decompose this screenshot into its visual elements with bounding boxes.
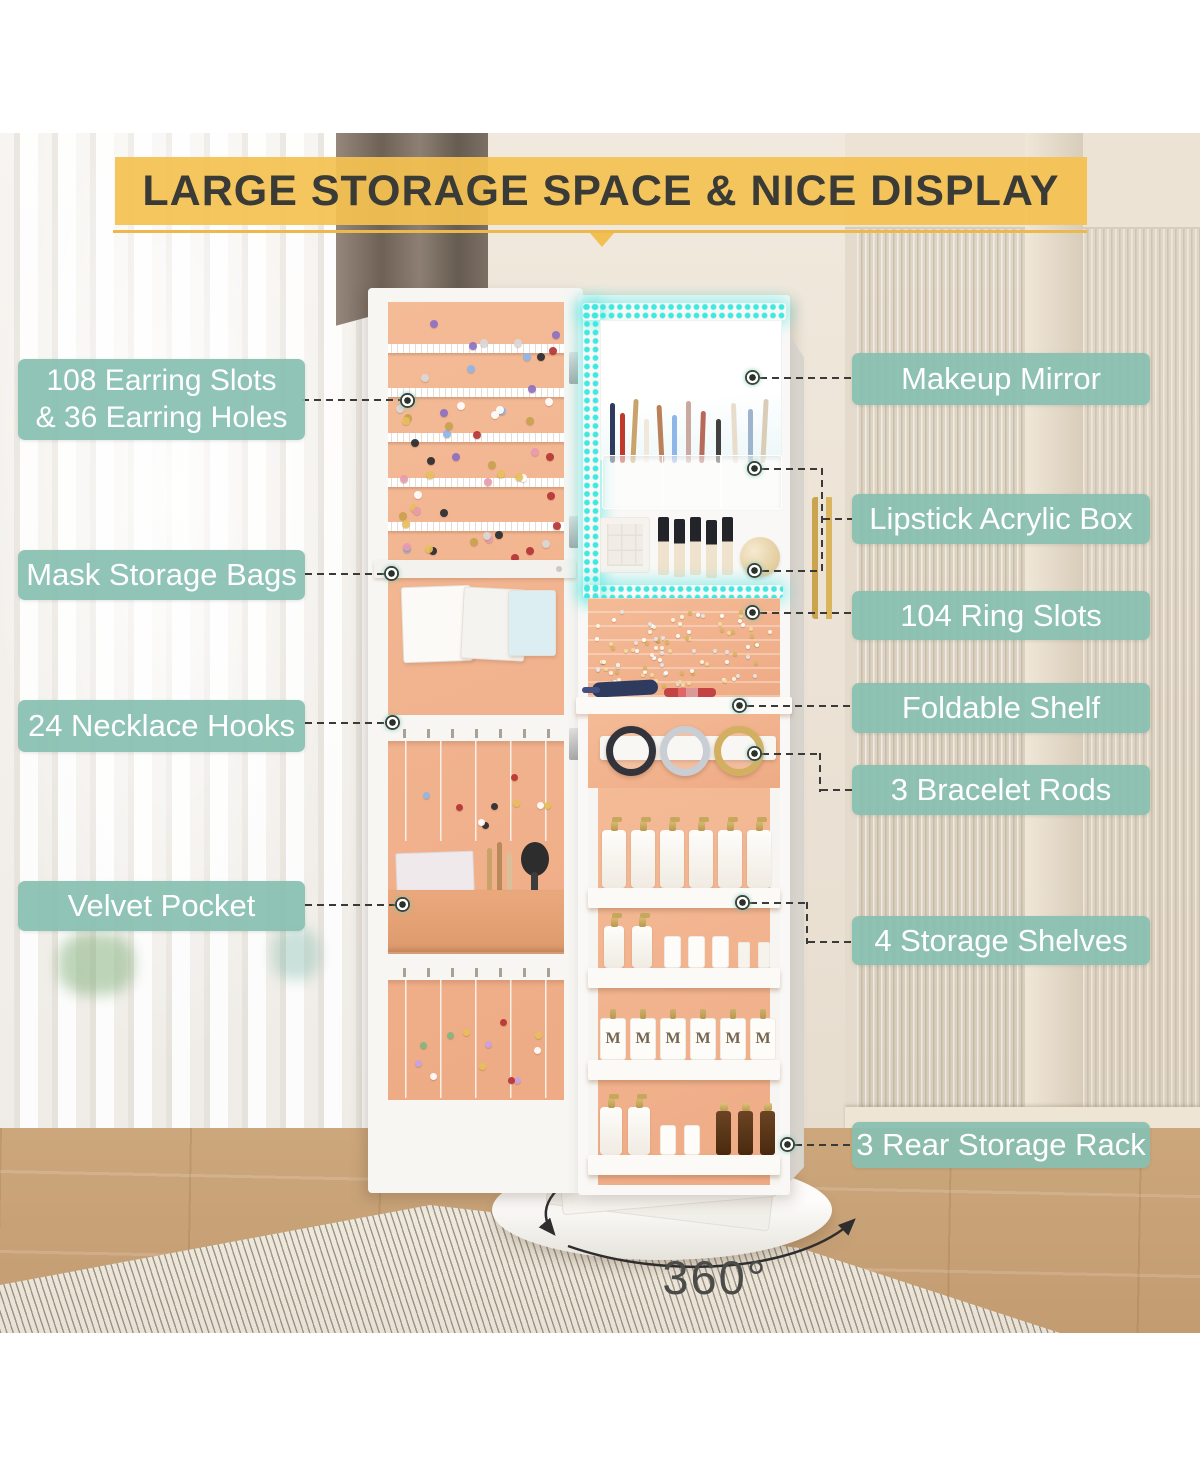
connector-dot: [385, 715, 400, 730]
connector-dot: [745, 370, 760, 385]
connector-line: [762, 468, 822, 470]
callout-makeup-mirror: Makeup Mirror: [852, 353, 1150, 405]
note-cards: [395, 851, 474, 896]
pump-bottle: [718, 830, 742, 888]
bracelet-rod: [606, 726, 656, 776]
headline-banner: LARGE STORAGE SPACE & NICE DISPLAY: [115, 157, 1087, 225]
perfume-bottle: M: [600, 1018, 626, 1060]
callout-velvet-pocket: Velvet Pocket: [18, 881, 305, 931]
bottle-letter: M: [725, 1030, 740, 1048]
door-interior: [388, 302, 564, 1100]
connector-line: [760, 612, 852, 614]
storage-shelf: [588, 888, 780, 908]
pump-bottle: [632, 926, 652, 968]
wardrobe-handle: [812, 497, 834, 619]
pocket-brushes: [483, 842, 553, 894]
pump-bottle: [689, 830, 713, 888]
callout-necklace-hooks: 24 Necklace Hooks: [18, 700, 305, 752]
led-strip-left: [583, 303, 600, 598]
sheer-curtain: [0, 133, 372, 1168]
connector-line: [305, 573, 384, 575]
connector-dot: [780, 1137, 795, 1152]
connector-dot: [395, 897, 410, 912]
pump-bottle: [660, 830, 684, 888]
earring-panel: [388, 302, 564, 582]
window-glimpse: [272, 928, 320, 980]
storage-shelf: [588, 968, 780, 988]
bottle-letter: M: [695, 1030, 710, 1048]
connector-dot: [747, 563, 762, 578]
lipstick: [674, 519, 685, 577]
spray-bottle: [716, 1111, 731, 1155]
callout-mask-storage-bags: Mask Storage Bags: [18, 550, 305, 600]
small-cosmetics: [664, 688, 716, 697]
connector-line: [795, 1144, 852, 1146]
connector-line: [305, 722, 385, 724]
connector-line: [808, 941, 852, 943]
window-glimpse: [58, 933, 134, 995]
necklace-area-1: [388, 741, 564, 841]
lipstick: [722, 517, 733, 575]
connector-dot: [745, 605, 760, 620]
mini-bottle: [758, 942, 770, 968]
cosmetic-tube: [688, 936, 705, 968]
connector-line: [819, 753, 821, 792]
callout-storage-shelves: 4 Storage Shelves: [852, 916, 1150, 965]
hairbrush-handle: [582, 687, 600, 693]
connector-line: [806, 902, 808, 944]
door-divider-bar: [374, 560, 576, 578]
callout-earring-slots: 108 Earring Slots & 36 Earring Holes: [18, 359, 305, 440]
product-infographic: 360°: [0, 0, 1200, 1466]
bottle-letter: M: [605, 1030, 620, 1048]
necklace-hooks-bar: [388, 715, 564, 741]
mini-bottle: [738, 942, 750, 968]
letterbox-top: [0, 0, 1200, 133]
shelf-zone: M M M M M M: [588, 788, 780, 1185]
callout-bracelet-rods: 3 Bracelet Rods: [852, 765, 1150, 815]
necklace-hooks-bar: [388, 954, 564, 980]
spray-bottle: [760, 1111, 775, 1155]
bottle-letter: M: [665, 1030, 680, 1048]
spray-bottle: [738, 1111, 753, 1155]
connector-line: [762, 570, 822, 572]
connector-line: [750, 902, 807, 904]
makeup-palette: [600, 517, 650, 573]
callout-lipstick-acrylic-box: Lipstick Acrylic Box: [852, 494, 1150, 544]
cosmetic-tube: [664, 936, 681, 968]
perfume-bottle: M: [660, 1018, 686, 1060]
connector-dot: [747, 746, 762, 761]
brush-cup: [604, 397, 780, 463]
velvet-pocket: [388, 890, 564, 952]
connector-dot: [732, 698, 747, 713]
storage-shelf: [588, 1060, 780, 1080]
bracelet-rod: [660, 726, 710, 776]
letterbox-bottom: [0, 1333, 1200, 1466]
connector-line: [760, 377, 852, 379]
perfume-bottle: M: [720, 1018, 746, 1060]
banner-pointer: [590, 233, 614, 247]
connector-line: [823, 518, 852, 520]
headline-text: LARGE STORAGE SPACE & NICE DISPLAY: [142, 167, 1059, 216]
callout-ring-slots: 104 Ring Slots: [852, 591, 1150, 640]
connector-line: [747, 705, 852, 707]
storage-shelf: [588, 1155, 780, 1175]
connector-line: [821, 789, 852, 791]
lipstick: [658, 517, 669, 575]
bottle-letter: M: [755, 1030, 770, 1048]
cosmetic-tube: [712, 936, 729, 968]
pump-bottle: [628, 1107, 650, 1155]
perfume-bottle: M: [750, 1018, 776, 1060]
lipstick: [690, 517, 701, 575]
left-door: [368, 288, 583, 1193]
connector-dot: [400, 393, 415, 408]
cabinet-body: M M M M M M: [578, 295, 790, 1195]
connector-line: [762, 753, 820, 755]
cosmetic-tube: [660, 1125, 676, 1155]
cabinet-side-panel: [788, 332, 804, 1184]
cosmetic-tube: [684, 1125, 700, 1155]
connector-dot: [747, 461, 762, 476]
callout-foldable-shelf: Foldable Shelf: [852, 683, 1150, 733]
pump-bottle: [631, 830, 655, 888]
connector-line: [302, 399, 400, 401]
led-strip-middle: [583, 585, 783, 598]
round-brush: [521, 842, 549, 876]
connector-dot: [384, 566, 399, 581]
callout-rear-storage-rack: 3 Rear Storage Rack: [852, 1122, 1150, 1168]
lipstick: [706, 520, 717, 578]
rotation-degrees-label: 360°: [630, 1250, 800, 1305]
necklace-area-2: [388, 978, 564, 1098]
bottle-letter: M: [635, 1030, 650, 1048]
pump-bottle: [747, 830, 771, 888]
connector-line: [305, 904, 395, 906]
pump-bottle: [602, 830, 626, 888]
connector-line: [821, 468, 823, 572]
pump-bottle: [604, 926, 624, 968]
mask-bag: [508, 590, 556, 656]
perfume-bottle: M: [690, 1018, 716, 1060]
led-strip-top: [582, 303, 786, 320]
pump-bottle: [600, 1107, 622, 1155]
perfume-bottle: M: [630, 1018, 656, 1060]
connector-dot: [735, 895, 750, 910]
